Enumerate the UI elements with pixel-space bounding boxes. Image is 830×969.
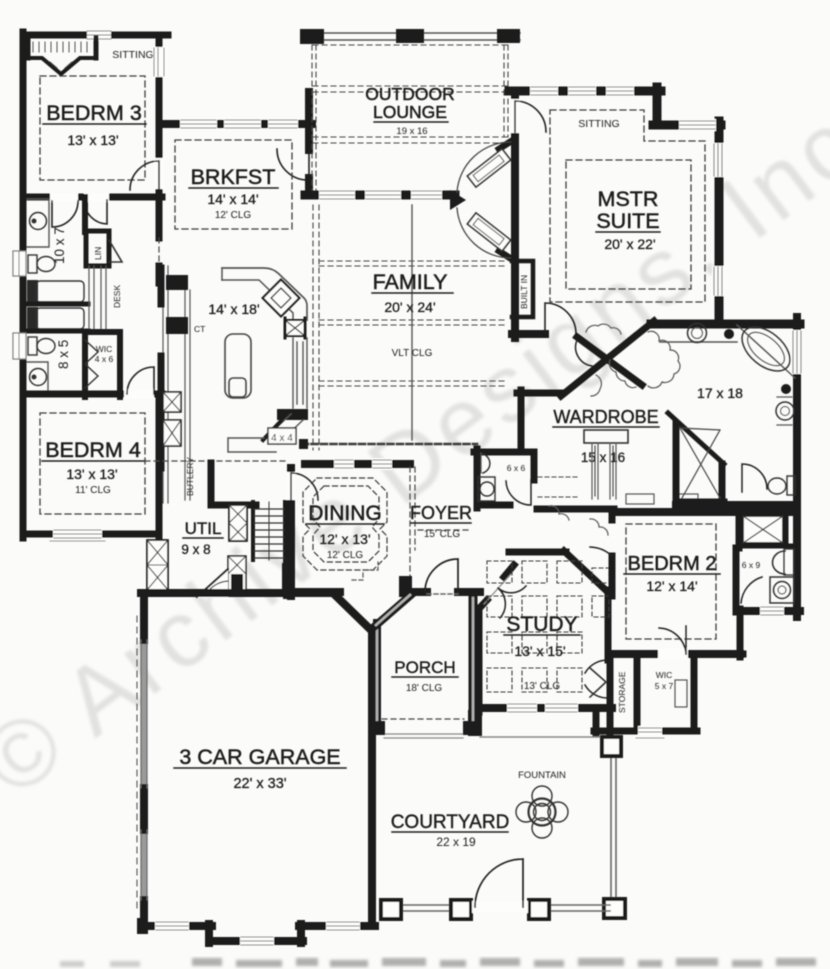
svg-text:3 CAR GARAGE: 3 CAR GARAGE: [179, 745, 340, 769]
svg-text:BRKFST: BRKFST: [191, 165, 276, 189]
svg-text:UTIL: UTIL: [185, 519, 222, 538]
svg-text:14' x 18': 14' x 18': [208, 301, 259, 317]
svg-text:4 x 4: 4 x 4: [271, 433, 293, 444]
svg-text:SITTING: SITTING: [578, 118, 619, 130]
svg-text:SITTING: SITTING: [112, 49, 153, 61]
svg-text:12' x 13': 12' x 13': [319, 531, 370, 547]
svg-text:20' x 22': 20' x 22': [604, 236, 655, 252]
svg-text:LOUNGE: LOUNGE: [373, 102, 447, 122]
svg-text:FAMILY: FAMILY: [373, 270, 448, 294]
svg-text:18' CLG: 18' CLG: [406, 683, 443, 694]
svg-text:DESK: DESK: [112, 285, 122, 308]
svg-text:BEDRM 2: BEDRM 2: [628, 553, 717, 575]
svg-text:FOUNTAIN: FOUNTAIN: [518, 770, 566, 781]
svg-text:BEDRM 3: BEDRM 3: [46, 101, 142, 125]
svg-text:12' CLG: 12' CLG: [215, 210, 252, 221]
svg-text:WIC: WIC: [96, 344, 113, 354]
svg-text:6 x 6: 6 x 6: [507, 463, 526, 473]
svg-text:11' CLG: 11' CLG: [75, 485, 111, 496]
svg-text:12' CLG: 12' CLG: [327, 550, 364, 561]
svg-text:BEDRM 4: BEDRM 4: [45, 438, 141, 462]
svg-text:STORAGE: STORAGE: [617, 671, 627, 713]
svg-text:10 x 7: 10 x 7: [52, 227, 67, 264]
svg-text:PORCH: PORCH: [394, 658, 455, 677]
svg-text:VLT CLG: VLT CLG: [392, 348, 433, 359]
svg-text:FOYER: FOYER: [410, 503, 472, 523]
svg-text:BUILT IN: BUILT IN: [519, 275, 529, 309]
svg-text:17 x 18: 17 x 18: [697, 385, 743, 401]
svg-text:22 x 19: 22 x 19: [436, 835, 476, 849]
svg-text:13' x 13': 13' x 13': [67, 132, 118, 148]
svg-text:14' x 14': 14' x 14': [207, 191, 258, 207]
svg-text:12' x 14': 12' x 14': [646, 578, 697, 594]
svg-text:13' x 15': 13' x 15': [514, 643, 565, 659]
svg-text:STUDY: STUDY: [506, 613, 577, 636]
svg-text:WIC: WIC: [656, 670, 673, 680]
svg-text:13' x 13': 13' x 13': [66, 466, 117, 482]
svg-text:19 x 16: 19 x 16: [396, 126, 427, 137]
svg-text:22' x 33': 22' x 33': [233, 776, 286, 792]
svg-text:COURTYARD: COURTYARD: [391, 812, 510, 833]
svg-text:5 x 7: 5 x 7: [655, 681, 674, 691]
svg-text:4 x 6: 4 x 6: [95, 354, 114, 364]
svg-text:CT: CT: [194, 324, 205, 334]
svg-text:8 x 5: 8 x 5: [56, 340, 71, 369]
svg-text:15 x 16: 15 x 16: [581, 450, 625, 465]
svg-text:6 x 9: 6 x 9: [742, 560, 761, 570]
svg-text:BUTLERY: BUTLERY: [185, 457, 195, 496]
svg-text:OUTDOOR: OUTDOOR: [365, 84, 454, 104]
svg-text:DINING: DINING: [308, 502, 382, 525]
svg-text:MSTR: MSTR: [598, 187, 659, 211]
svg-text:20' x 24': 20' x 24': [384, 299, 435, 315]
svg-text:SUITE: SUITE: [596, 209, 659, 233]
svg-text:15' CLG: 15' CLG: [424, 529, 461, 540]
svg-text:LIN: LIN: [93, 247, 103, 260]
svg-text:9 x 8: 9 x 8: [181, 542, 210, 557]
svg-text:WARDROBE: WARDROBE: [553, 407, 658, 427]
svg-text:13' CLG: 13' CLG: [524, 681, 561, 692]
